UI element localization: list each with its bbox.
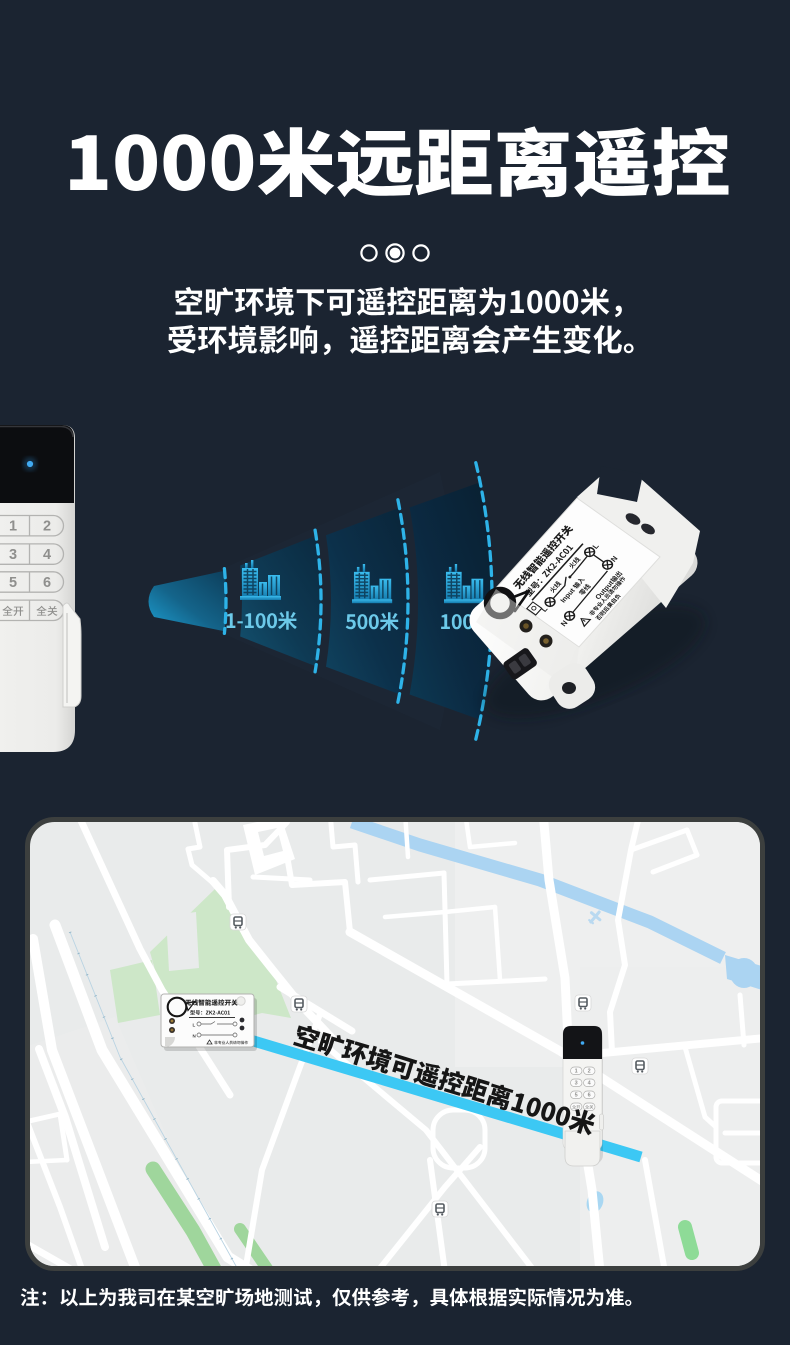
svg-text:6: 6: [43, 575, 51, 591]
svg-text:3: 3: [575, 1081, 578, 1087]
svg-text:2: 2: [588, 1069, 591, 1075]
svg-text:2: 2: [43, 519, 51, 535]
svg-text:N: N: [193, 1034, 196, 1039]
svg-text:6: 6: [588, 1093, 591, 1099]
svg-text:1: 1: [575, 1069, 578, 1075]
svg-text:1: 1: [9, 519, 17, 535]
svg-text:4: 4: [43, 547, 51, 563]
svg-text:5: 5: [575, 1093, 578, 1099]
svg-text:L: L: [193, 1023, 196, 1028]
svg-text:5: 5: [9, 575, 17, 591]
svg-text:3: 3: [9, 547, 17, 563]
